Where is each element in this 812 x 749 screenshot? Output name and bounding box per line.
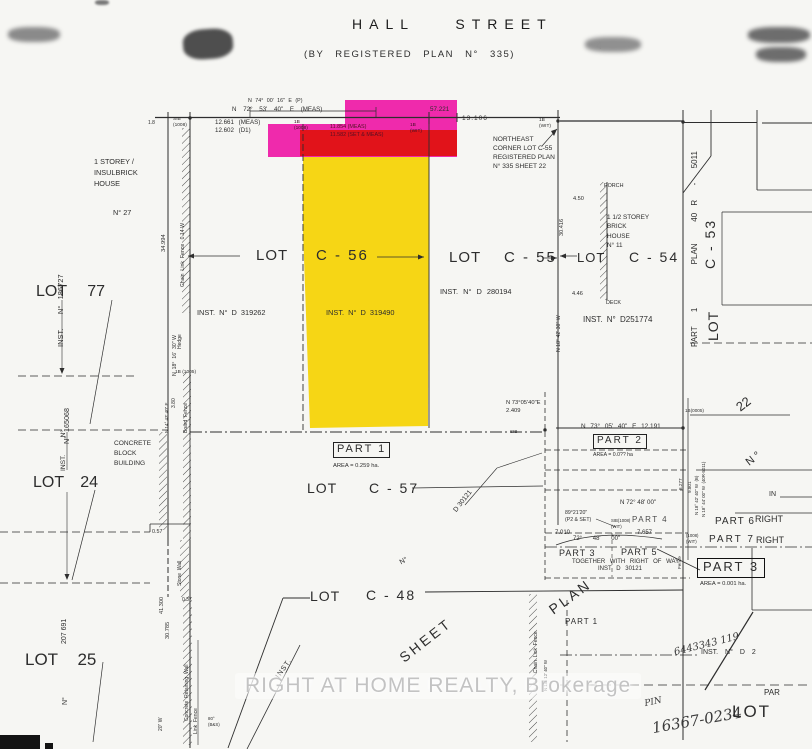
instrument-number: INST. N° 186727: [56, 274, 65, 347]
dimension-label: 0.37: [182, 597, 192, 603]
bearing-label: N 18° 16' 30" W: [172, 335, 179, 376]
dimension-label: 7.657: [637, 530, 652, 538]
monument-label: SIB: [510, 429, 517, 435]
lot-word: LOT: [705, 311, 723, 341]
building-label: CONCRETE BLOCK BUILDING: [114, 439, 151, 469]
part-1-area: AREA = 0.259 ha.: [333, 463, 379, 470]
bearing-label: N 73°05'40"E 2.409: [506, 400, 541, 415]
dimension-label: 57.221: [430, 106, 449, 114]
clipped-text: PAR: [764, 688, 780, 698]
lot-c53-label: C - 53: [702, 219, 720, 269]
bearing-label: N 74° 00' 16" E (P): [248, 98, 302, 105]
wall-label: Stone Wall: [177, 561, 183, 586]
monument-label: 1B (1008): [294, 120, 308, 132]
bearing-label: N 72° 48' 00": [620, 499, 656, 507]
part-1-label: PART 1: [565, 617, 598, 627]
instrument-number: INST. N° D 2: [701, 649, 756, 658]
north-annotation: N°: [62, 697, 71, 705]
northeast-corner-note: NORTHEAST CORNER LOT C-55 REGISTERED PLA…: [493, 136, 555, 172]
monument-label: SIB (1008): [173, 117, 187, 129]
wall-label: Concrete Retaining Wall: [184, 664, 190, 721]
dimension-label: 12.661 (MEAS): [215, 119, 260, 127]
dimension-label: 34.994: [161, 234, 168, 252]
instrument-number: INST. N° D 319490: [326, 308, 395, 317]
house-label: 1 1/2 STOREY BRICK HOUSE N° 11: [607, 213, 649, 250]
bearing-label: 89°21'20" (P2 & SET): [565, 510, 591, 524]
part-1-box: PART 1: [333, 442, 390, 458]
lot-c57-label: C - 57: [369, 480, 419, 498]
monument-label: (1008) (WIT): [686, 533, 698, 544]
dimension-label: 11.582 (SET & MEAS): [330, 132, 383, 139]
dimension-label: 12.602 (D1): [215, 127, 251, 135]
bearing-label: N 18° 44' 00" W (40R-5011): [701, 462, 707, 517]
part-6-label: PART 6: [715, 516, 755, 529]
survey-linework: [0, 0, 812, 749]
instrument-number: 207 691: [61, 619, 70, 644]
monument-label: SIB(1008) (WIT): [611, 518, 630, 529]
instrument-number: INST. N°: [60, 430, 68, 471]
house-label: 1 STOREY / INSULBRICK HOUSE: [94, 157, 138, 190]
part-3-area: AREA = 0.001 ha.: [700, 581, 746, 588]
house-number: N° 27: [113, 208, 131, 217]
monument-label: 1B (WIT): [539, 118, 551, 130]
scan-black-bar: [0, 735, 40, 749]
instrument-number: INST. N° D251774: [583, 315, 652, 325]
dimension-label: 1.8: [148, 120, 155, 126]
bearing-label: 80° (B&S): [208, 716, 220, 727]
right-of-way-text: RIGHT: [755, 514, 783, 525]
instrument-number: INST. N° D 280194: [440, 287, 512, 296]
dimension-label: 8.277: [678, 479, 684, 491]
part-2-box: PART 2: [593, 434, 647, 449]
part-4-label: PART 4: [632, 515, 668, 525]
dimension-label: 13.106: [462, 115, 488, 123]
monument-label: 1B (WIT): [410, 123, 422, 135]
fence-label: Board Fence: [183, 403, 189, 433]
lot-c48-label: C - 48: [366, 587, 416, 605]
lot-word: LOT: [307, 480, 337, 498]
yellow-highlight: [303, 157, 429, 428]
lot-word: LOT: [732, 701, 771, 722]
lot-word: LOT: [577, 250, 605, 266]
porch-label: PORCH: [604, 183, 623, 190]
part-2-area: AREA = 0.0?? ha: [593, 452, 633, 459]
bearing-label: 20" W: [158, 718, 164, 731]
dimension-label: 41.300: [159, 597, 166, 614]
survey-plan-scan: HALL STREET (BY REGISTERED PLAN N° 335) …: [0, 0, 812, 749]
dimension-label: 30.416: [559, 219, 566, 236]
right-of-way-text: RIGHT: [756, 535, 784, 546]
bearing-label: N 72° 53' 40" E (MEAS): [232, 106, 322, 114]
part-7-label: PART 7: [709, 534, 755, 547]
dimension-label: 11.854 (MEAS): [330, 124, 366, 131]
bearing-label: N 73° 05' 40" E 12.191: [581, 423, 661, 431]
bearing-label: N 14° 43' 40" E: [164, 402, 170, 433]
dimension-label: 7.010: [555, 530, 570, 538]
fence-label: Link Fence: [193, 708, 199, 734]
bearing-label: 72° 48' 00": [573, 536, 620, 544]
part-5-label: PART 5: [621, 547, 658, 558]
scan-black-tick: [45, 743, 53, 749]
part1-plan-strip-label: PART 1 PLAN 40 R - 5011: [690, 151, 700, 347]
lot-word: LOT: [310, 588, 340, 606]
dimension-label: 9.801: [687, 482, 693, 494]
street-name: HALL STREET: [352, 16, 553, 34]
lot-c56-label: C - 56: [316, 247, 369, 266]
bearing-label: N 18° 42' 30" W: [556, 315, 563, 352]
lot-c54-label: C - 54: [629, 249, 679, 267]
lot-24-label: LOT 24: [33, 473, 98, 493]
street-plan-note: (BY REGISTERED PLAN N° 335): [304, 49, 515, 61]
dimension-label: 4.50: [573, 196, 584, 203]
dimension-label: 0.57: [152, 529, 163, 536]
lot-77-label: LOT 77: [36, 282, 105, 302]
deck-label: DECK: [606, 300, 621, 307]
monument-label: 1B(0005): [685, 408, 704, 414]
fence-label: Chain Link Fence: [533, 631, 539, 673]
part-3-label: PART 3: [559, 548, 596, 559]
clipped-text: IN: [769, 491, 776, 500]
dimension-label: 4.46: [572, 291, 583, 298]
lot-word: LOT: [449, 249, 481, 268]
part-3-box: PART 3: [697, 558, 765, 578]
bearing-label: N 18° 42' 40" W (B): [694, 476, 700, 515]
realty-watermark: RIGHT AT HOME REALTY, Brokerage: [235, 673, 641, 699]
dimension-label: 30.785: [165, 622, 172, 639]
pencil-mark: 4: [596, 40, 602, 54]
lot-25-label: LOT 25: [25, 649, 96, 670]
instrument-number: INST D 30121: [598, 566, 642, 574]
lot-word: LOT: [256, 247, 288, 266]
fence-label: Chain Link Fence 0.14 W: [180, 223, 187, 287]
dimension-label: 3.80: [171, 398, 177, 408]
instrument-number: INST. N° D 319262: [197, 308, 266, 317]
lot-c55-label: C - 55: [504, 249, 557, 268]
